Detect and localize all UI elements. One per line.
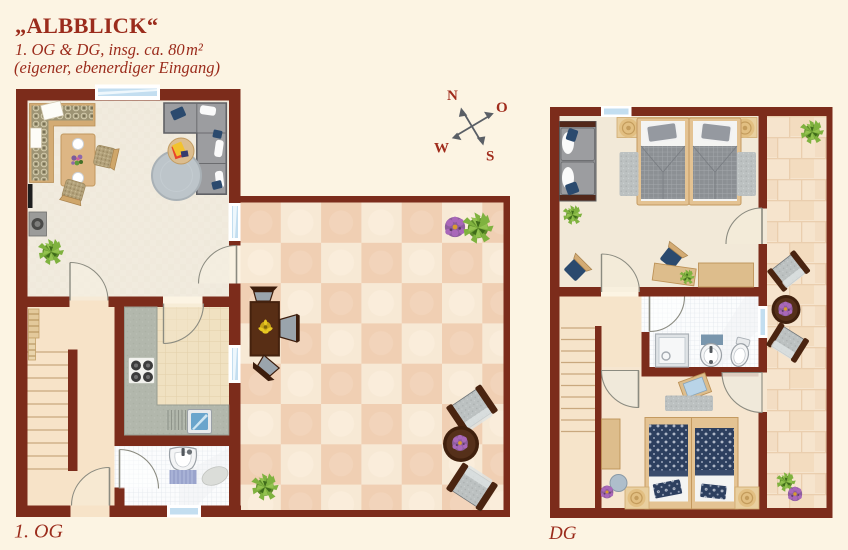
svg-text:DG: DG xyxy=(548,523,577,544)
svg-text:„ALBBLICK“: „ALBBLICK“ xyxy=(15,13,158,38)
svg-text:O: O xyxy=(496,100,508,116)
svg-text:S: S xyxy=(486,149,494,165)
svg-text:W: W xyxy=(434,141,449,157)
svg-text:(eigener, ebenerdiger Eingang): (eigener, ebenerdiger Eingang) xyxy=(14,58,220,77)
svg-text:1. OG & DG, insg. ca. 80 m²: 1. OG & DG, insg. ca. 80 m² xyxy=(15,40,204,59)
svg-text:1. OG: 1. OG xyxy=(14,521,63,543)
svg-text:N: N xyxy=(447,88,458,104)
